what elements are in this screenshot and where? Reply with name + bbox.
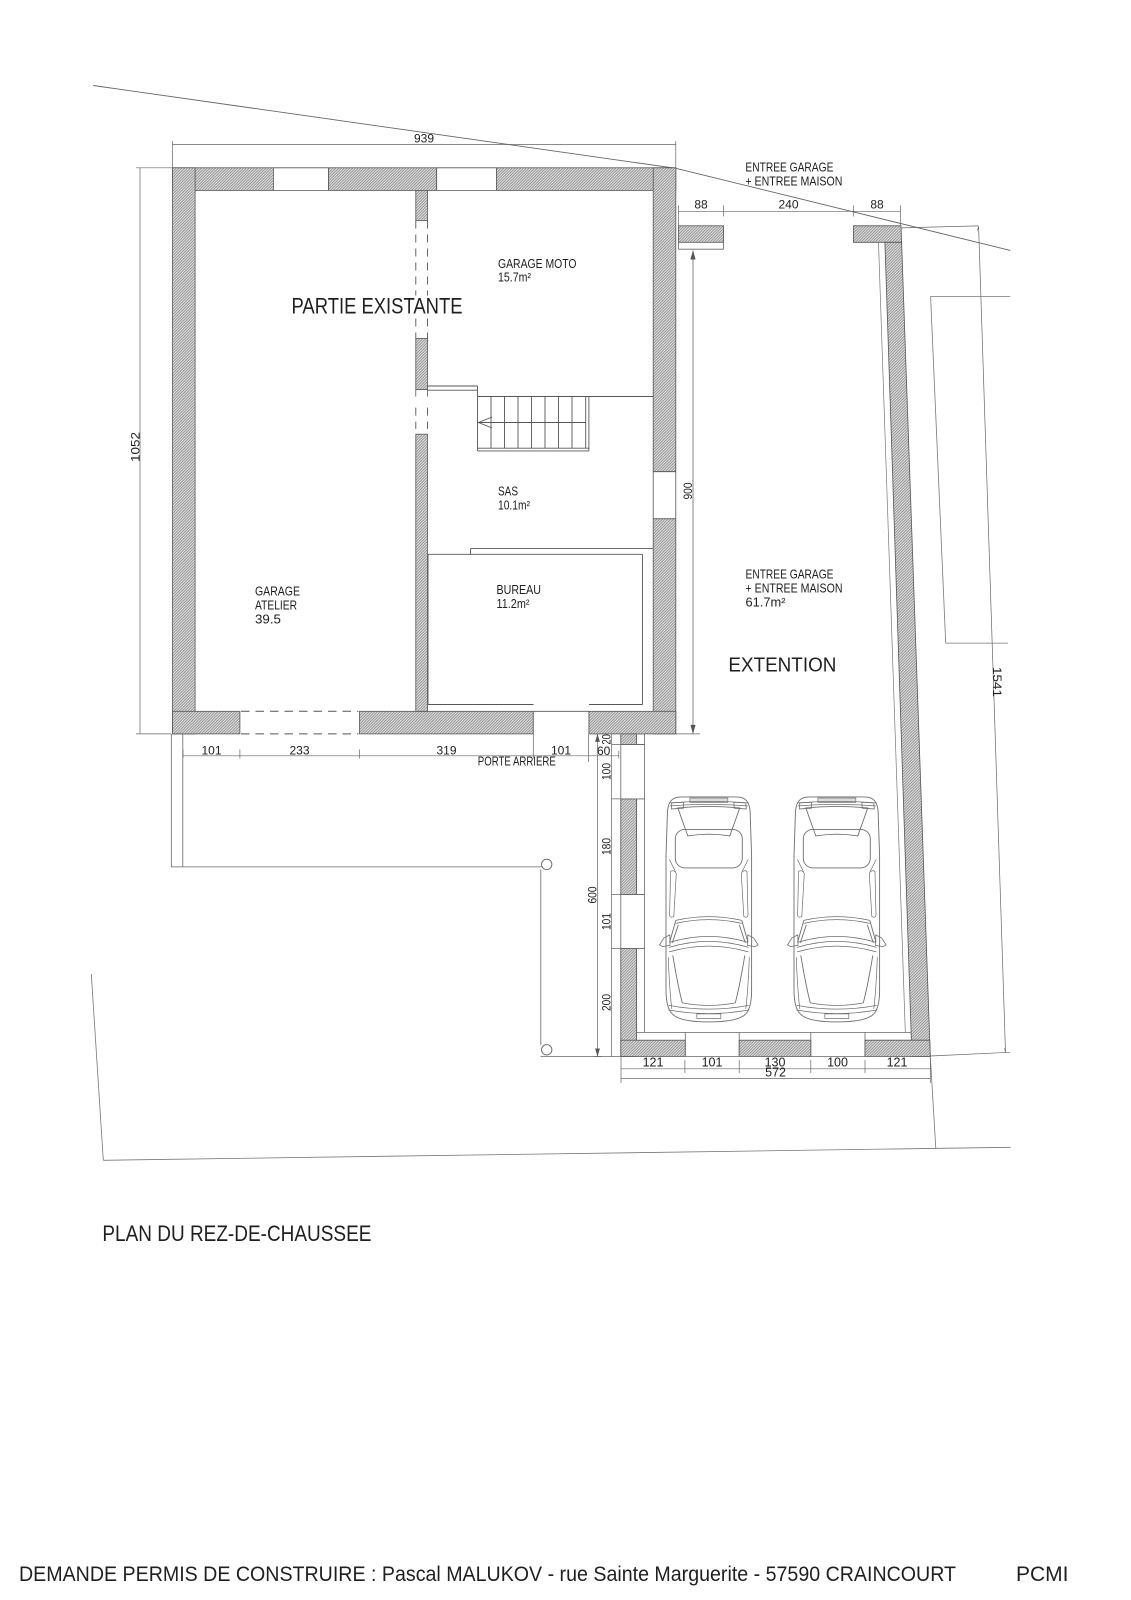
svg-text:939: 939 (414, 132, 434, 146)
svg-text:121: 121 (643, 1056, 664, 1070)
svg-text:200: 200 (599, 994, 613, 1011)
svg-text:88: 88 (870, 198, 884, 212)
svg-text:61.7m²: 61.7m² (746, 596, 786, 610)
svg-text:600: 600 (585, 886, 599, 903)
svg-text:DEMANDE PERMIS DE CONSTRUIRE :: DEMANDE PERMIS DE CONSTRUIRE : Pascal MA… (19, 1563, 956, 1586)
svg-text:+ ENTREE MAISON: + ENTREE MAISON (745, 174, 842, 188)
svg-text:ENTREE GARAGE: ENTREE GARAGE (745, 161, 833, 175)
svg-text:11.2m²: 11.2m² (497, 597, 530, 611)
svg-text:100: 100 (827, 1056, 848, 1070)
svg-text:572: 572 (765, 1066, 786, 1080)
svg-text:319: 319 (436, 744, 456, 758)
svg-text:15.7m²: 15.7m² (498, 270, 531, 284)
svg-text:900: 900 (681, 482, 695, 499)
svg-text:+ ENTREE MAISON: + ENTREE MAISON (746, 582, 843, 596)
svg-text:GARAGE MOTO: GARAGE MOTO (498, 257, 577, 271)
svg-text:BUREAU: BUREAU (497, 583, 542, 597)
svg-text:100: 100 (599, 763, 613, 780)
svg-text:101: 101 (599, 913, 613, 930)
svg-text:PARTIE EXISTANTE: PARTIE EXISTANTE (292, 294, 463, 319)
svg-text:1541: 1541 (990, 667, 1004, 697)
svg-text:1052: 1052 (128, 432, 142, 462)
svg-text:ENTREE GARAGE: ENTREE GARAGE (746, 568, 834, 582)
svg-text:233: 233 (289, 744, 309, 758)
svg-text:PORTE ARRIERE: PORTE ARRIERE (478, 755, 556, 769)
svg-text:GARAGE: GARAGE (255, 584, 300, 598)
svg-text:PLAN DU REZ-DE-CHAUSSEE: PLAN DU REZ-DE-CHAUSSEE (102, 1221, 371, 1246)
svg-text:101: 101 (702, 1056, 723, 1070)
svg-text:PCMI: PCMI (1016, 1563, 1069, 1586)
svg-text:180: 180 (599, 838, 613, 855)
svg-text:240: 240 (778, 198, 798, 212)
svg-text:121: 121 (887, 1056, 908, 1070)
svg-text:88: 88 (694, 198, 708, 212)
svg-text:ATELIER: ATELIER (255, 599, 297, 613)
svg-text:10.1m²: 10.1m² (498, 499, 530, 513)
svg-text:EXTENTION: EXTENTION (728, 654, 836, 677)
svg-text:SAS: SAS (498, 485, 518, 499)
svg-text:101: 101 (201, 744, 221, 758)
svg-text:39.5: 39.5 (255, 613, 281, 627)
svg-text:60: 60 (597, 744, 611, 758)
